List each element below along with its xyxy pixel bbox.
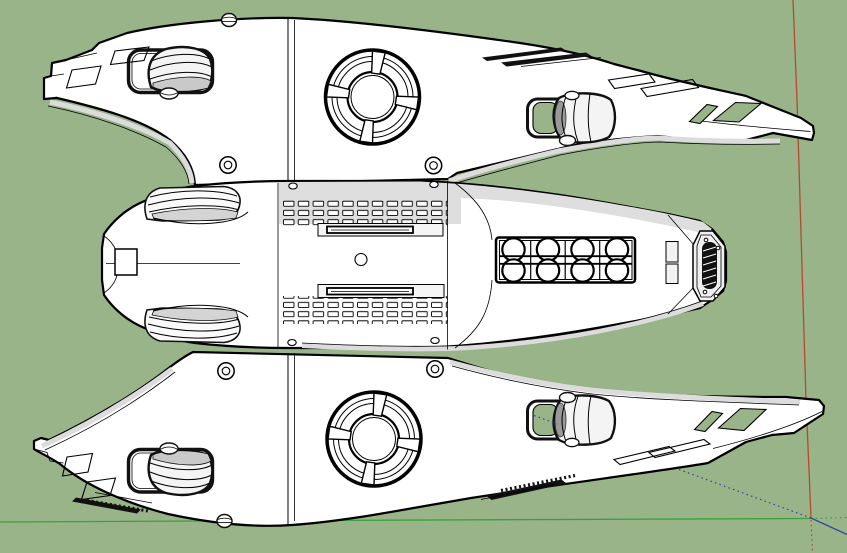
nose-hatch <box>115 249 137 275</box>
rear-hatch <box>666 264 678 284</box>
engine-pod-upper-right[interactable] <box>528 91 615 145</box>
turret-upper[interactable] <box>326 50 420 144</box>
hull-knob <box>217 515 232 528</box>
cockpit-ports-panel[interactable] <box>496 238 635 283</box>
intake-upper <box>145 187 248 224</box>
hull-knob <box>222 14 237 27</box>
hull-bar <box>318 224 443 237</box>
tail-exhaust-plate[interactable] <box>693 231 725 301</box>
engine-pod-lower-right[interactable] <box>528 393 615 447</box>
app-window <box>0 0 847 553</box>
intake-lower <box>145 305 248 342</box>
viewport-3d[interactable] <box>0 0 847 553</box>
hull-bar <box>318 285 444 298</box>
rear-hatch <box>666 242 678 263</box>
vent-grid-top <box>283 200 448 227</box>
turret-lower[interactable] <box>327 392 421 486</box>
vent-grid-bottom <box>283 296 448 324</box>
